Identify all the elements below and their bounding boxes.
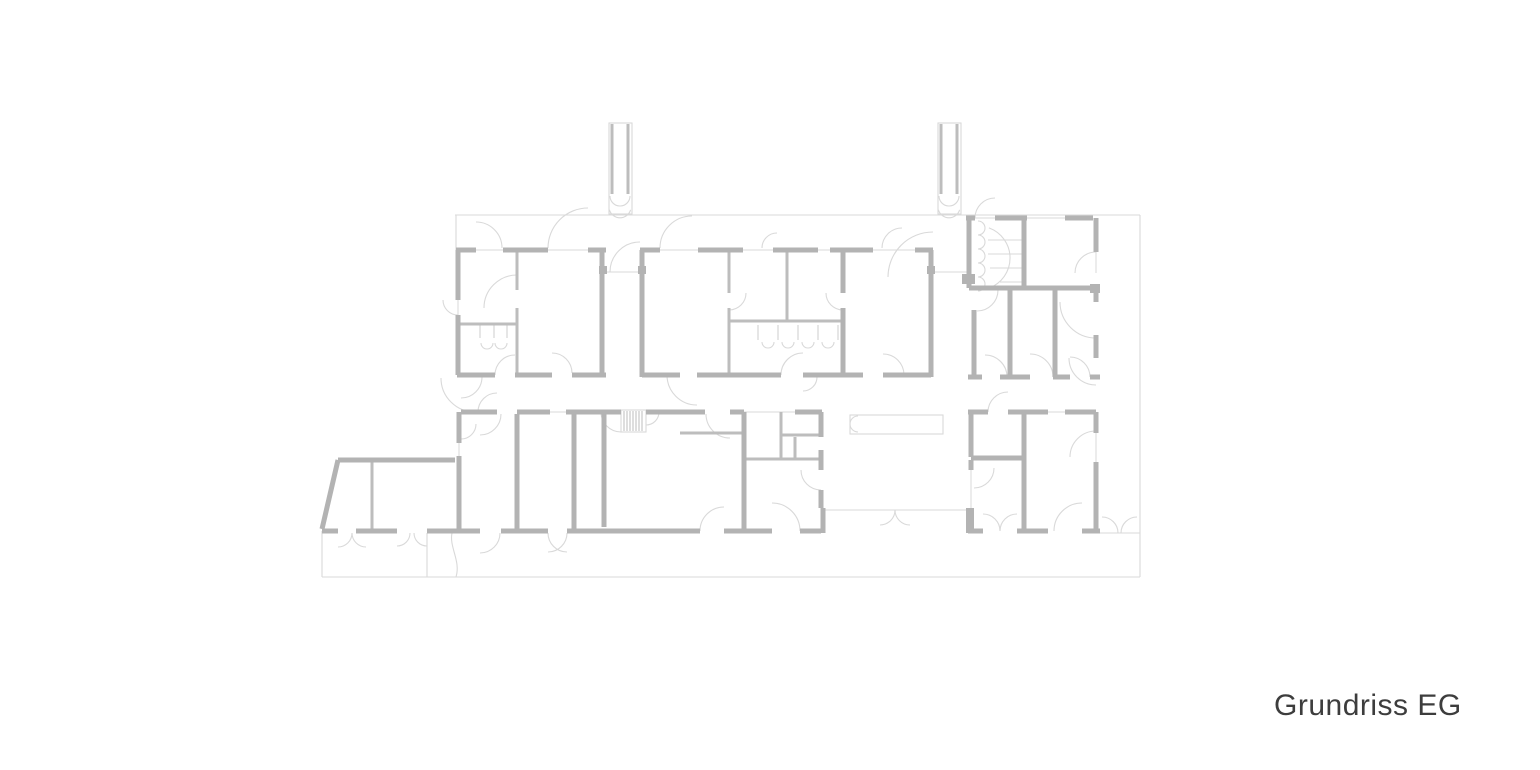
floor-plan-caption: Grundriss EG [1274,689,1462,723]
floor-plan-drawing [0,0,1540,770]
drawing-sheet: Grundriss EG [0,0,1540,770]
plan-outline-and-glazing-lines [322,123,1140,577]
